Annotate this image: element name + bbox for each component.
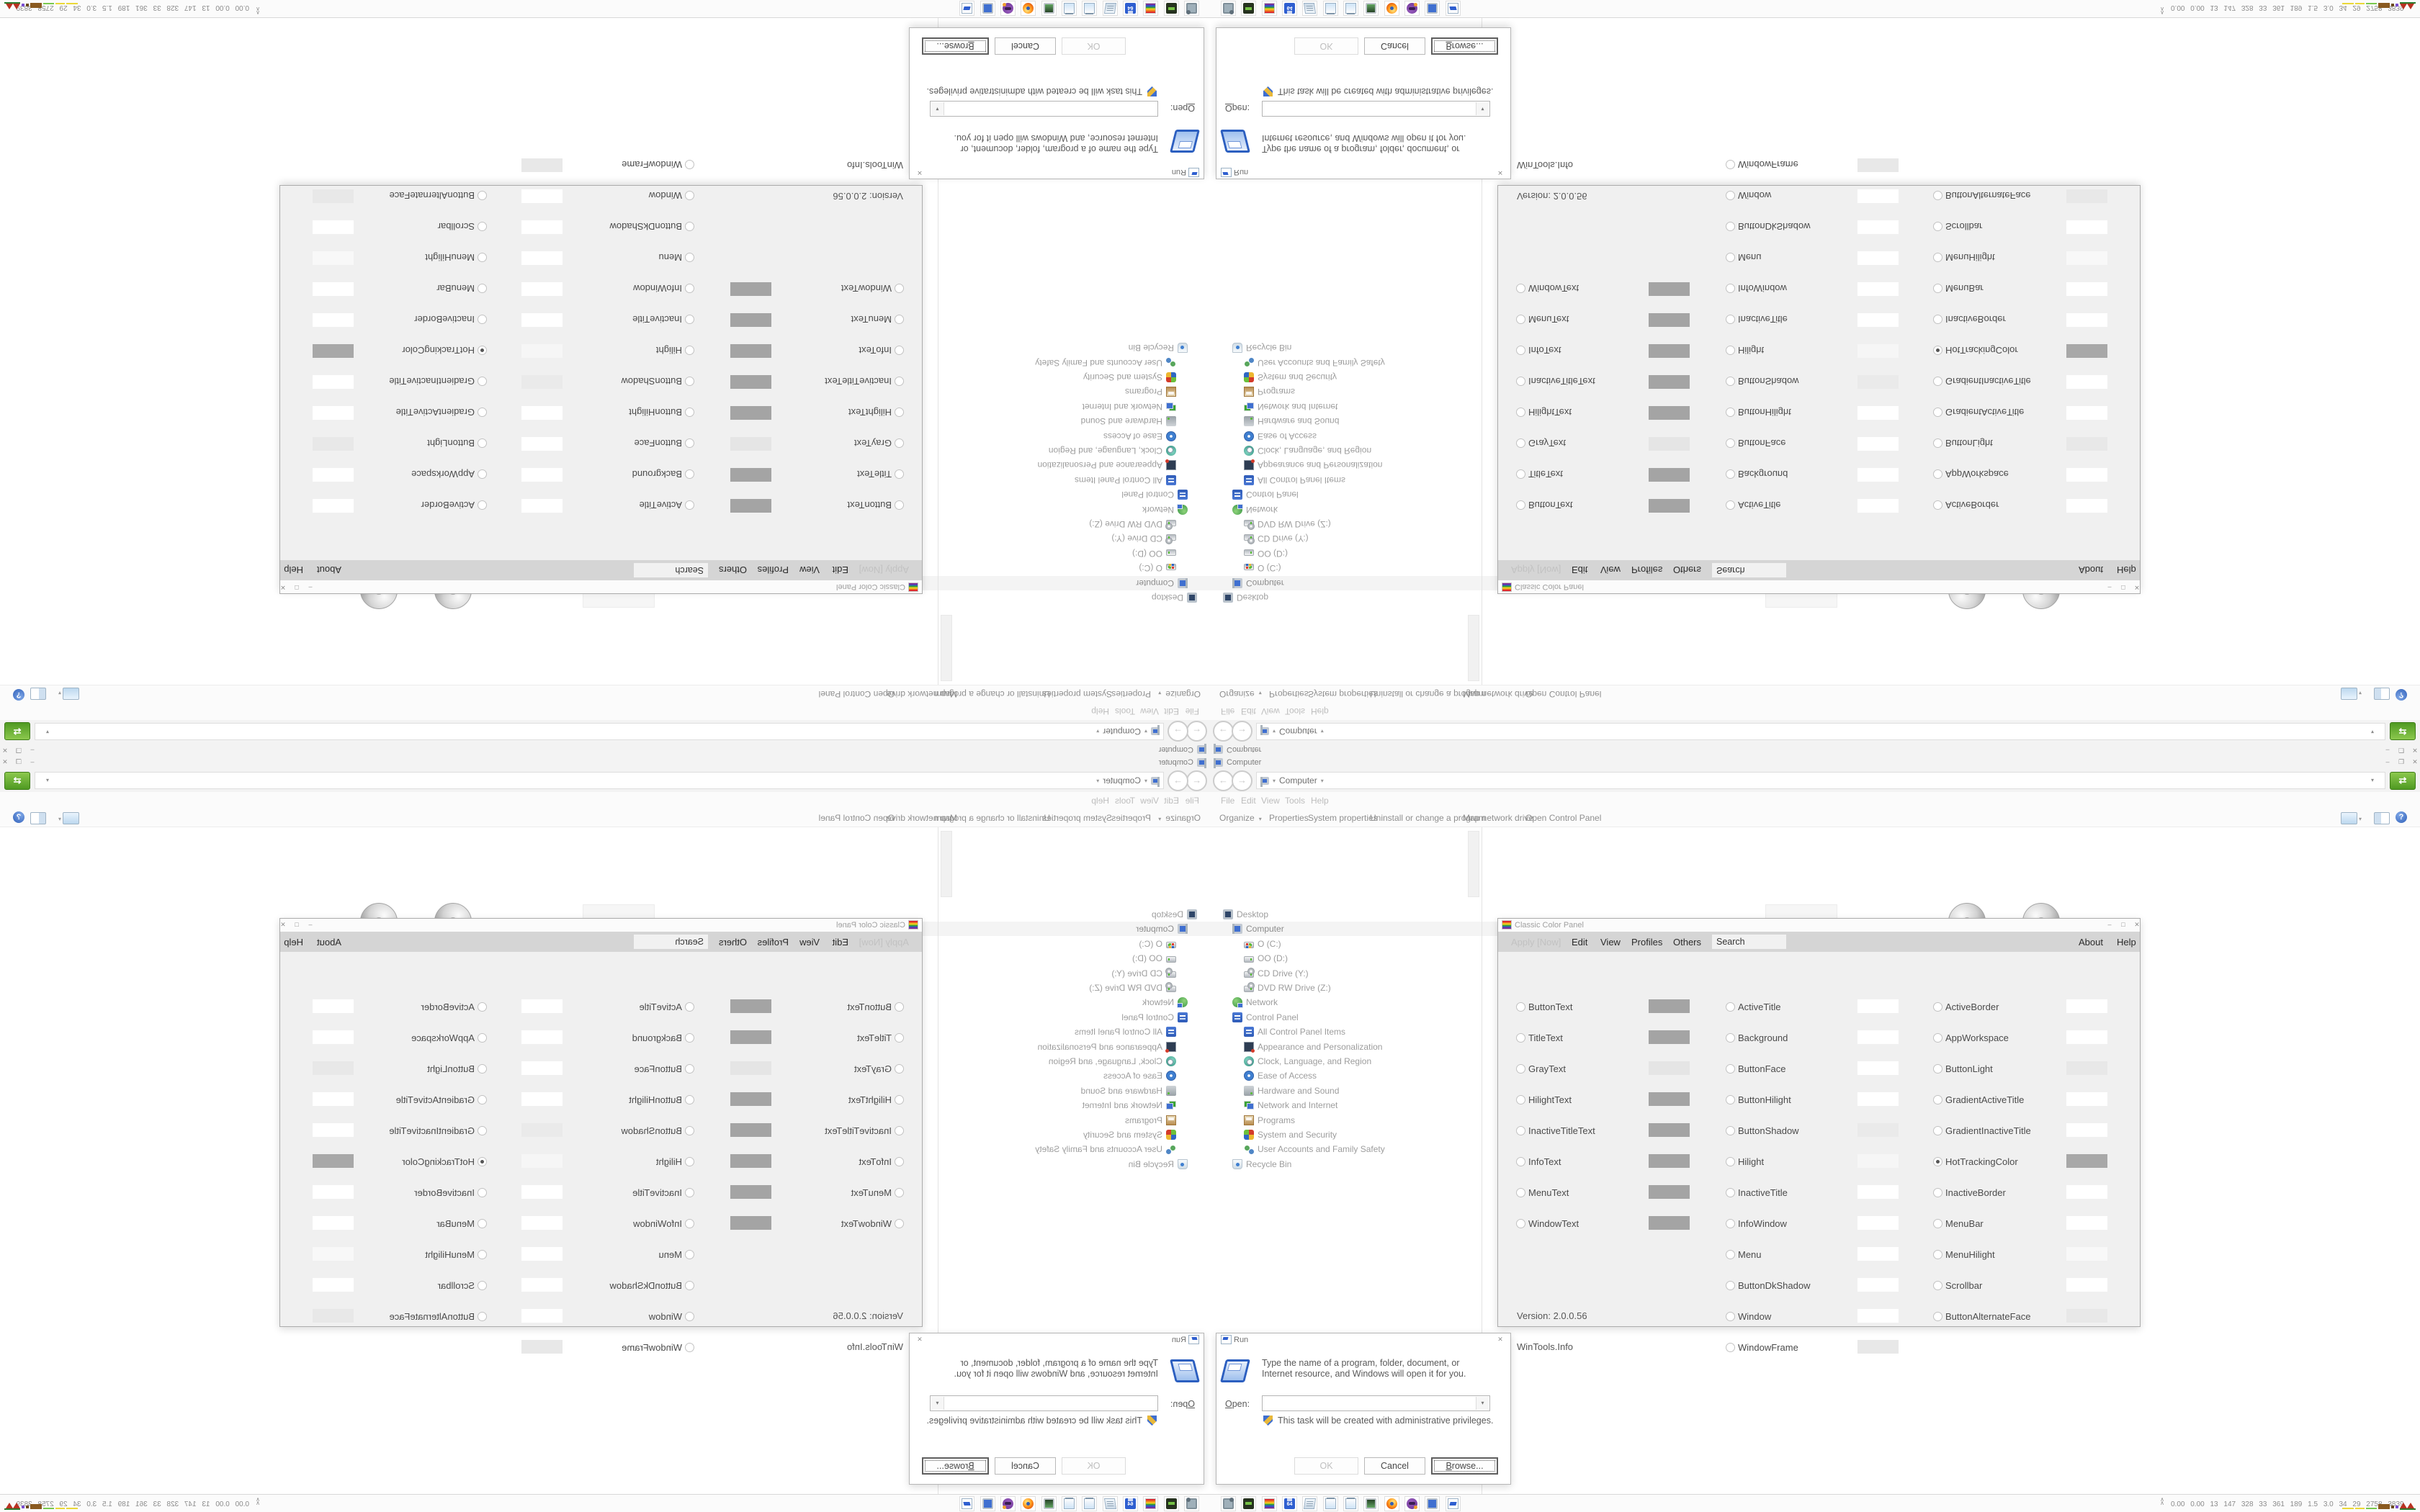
radio-graytext[interactable] [1516, 439, 1525, 449]
color-swatch-background[interactable] [521, 468, 563, 482]
radio-menubar[interactable] [1933, 284, 1942, 294]
back-button[interactable]: ← [1213, 721, 1234, 742]
radio-inactivetitle[interactable] [685, 1188, 694, 1197]
color-swatch-inactivetitletext[interactable] [1649, 375, 1690, 389]
radio-graytext[interactable] [1516, 1064, 1525, 1074]
tree-item-cd-drive-y[interactable]: CD Drive (Y:) [1210, 531, 1515, 546]
taskbar-button-floppy-64[interactable]: 64 [1123, 1, 1138, 16]
toolbar-system-properties[interactable]: System properties [1308, 813, 1378, 823]
restore-button[interactable]: ❐ [2396, 757, 2407, 767]
color-swatch-menuhilight[interactable] [313, 251, 354, 265]
color-panel-menu-view[interactable]: View [799, 564, 820, 575]
restore-button[interactable]: ❐ [2396, 745, 2407, 755]
tree-item-desktop[interactable]: Desktop [1210, 590, 1494, 605]
radio-gradientactivetitle[interactable] [478, 408, 487, 418]
color-swatch-menuhilight[interactable] [2066, 251, 2107, 265]
breadcrumb[interactable]: Computer [1103, 775, 1141, 786]
color-swatch-hottrackingcolor[interactable] [313, 1154, 354, 1168]
toolbar-map-network-drive[interactable]: Map network drive [887, 689, 957, 699]
taskbar-button-text-scroll[interactable] [1302, 1496, 1317, 1511]
back-button[interactable]: ← [1186, 721, 1207, 742]
restore-button[interactable]: ❐ [13, 745, 24, 755]
color-swatch-scrollbar[interactable] [2066, 1278, 2107, 1292]
maximize-button[interactable]: □ [2117, 582, 2129, 592]
color-swatch-windowframe[interactable] [521, 1340, 563, 1354]
minimize-button[interactable]: – [2382, 745, 2393, 755]
radio-buttonalternateface[interactable] [478, 192, 487, 201]
radio-hilighttext[interactable] [895, 408, 904, 418]
color-swatch-buttontext[interactable] [730, 499, 771, 513]
browse-button[interactable]: Browse... [1431, 37, 1498, 55]
radio-gradientactivetitle[interactable] [478, 1095, 487, 1104]
color-swatch-menutext[interactable] [730, 1185, 771, 1199]
radio-infotext[interactable] [895, 1157, 904, 1166]
color-panel-menu-view[interactable]: View [1600, 564, 1621, 575]
color-swatch-activetitle[interactable] [521, 999, 563, 1013]
chevron-down-icon[interactable]: ▾ [1273, 778, 1276, 784]
menu-view[interactable]: View [1140, 706, 1159, 716]
tree-item-oo-d[interactable]: OO (D:) [905, 951, 1210, 966]
taskbar-button-terminal-monitor[interactable] [1363, 1, 1379, 16]
radio-hottrackingcolor[interactable] [478, 346, 487, 356]
radio-buttonshadow[interactable] [685, 1126, 694, 1135]
color-swatch-hilight[interactable] [521, 1154, 563, 1168]
tree-item-ease-of-access[interactable]: Ease of Access [905, 1068, 1210, 1083]
tree-item-computer[interactable]: Computer [917, 922, 1210, 936]
tray-expander-icon[interactable]: ∧∧ [254, 7, 261, 14]
close-button[interactable]: ✕ [2409, 757, 2420, 767]
color-swatch-titletext[interactable] [730, 1030, 771, 1044]
taskbar-button-notepad-2[interactable] [1343, 1496, 1358, 1511]
tree-item-network[interactable]: Network [917, 995, 1210, 1009]
chevron-down-icon[interactable]: ▾ [2359, 690, 2362, 696]
close-button[interactable]: ✕ [2131, 920, 2143, 930]
color-swatch-graytext[interactable] [730, 437, 771, 451]
tree-item-system-and-security[interactable]: System and Security [1210, 1128, 1515, 1142]
tree-item-recycle-bin[interactable]: Recycle Bin [1210, 1157, 1503, 1171]
toolbar-open-control-panel[interactable]: Open Control Panel [1525, 689, 1601, 699]
taskbar-button-media-purple[interactable] [1404, 1, 1420, 16]
radio-titletext[interactable] [1516, 1033, 1525, 1043]
toolbar-organize[interactable]: Organize▾ [1158, 813, 1201, 823]
close-button[interactable]: ✕ [277, 582, 289, 592]
color-swatch-buttonface[interactable] [521, 1061, 563, 1075]
color-swatch-buttonshadow[interactable] [521, 375, 563, 389]
radio-appworkspace[interactable] [478, 470, 487, 480]
menu-edit[interactable]: Edit [1164, 706, 1179, 716]
menu-file[interactable]: File [1221, 796, 1234, 806]
tree-item-computer[interactable]: Computer [1210, 922, 1503, 936]
radio-background[interactable] [1726, 1033, 1735, 1043]
radio-hottrackingcolor[interactable] [1933, 346, 1942, 356]
radio-buttondkshadow[interactable] [685, 1281, 694, 1290]
radio-inactivetitle[interactable] [685, 315, 694, 325]
tree-item-o-c[interactable]: O (C:) [905, 937, 1210, 951]
color-swatch-hilighttext[interactable] [730, 406, 771, 420]
color-panel-menu-help[interactable]: Help [2117, 564, 2136, 575]
restore-button[interactable]: ❐ [13, 757, 24, 767]
preview-pane-icon[interactable] [2374, 812, 2390, 824]
tree-item-ease-of-access[interactable]: Ease of Access [905, 429, 1210, 444]
taskbar-button-notepad[interactable] [1323, 1496, 1338, 1511]
radio-hilight[interactable] [685, 1157, 694, 1166]
color-swatch-inactivetitletext[interactable] [730, 1123, 771, 1137]
tree-item-ease-of-access[interactable]: Ease of Access [1210, 1068, 1515, 1083]
taskbar-button-display-settings[interactable] [1184, 1496, 1199, 1511]
radio-menubar[interactable] [478, 284, 487, 294]
back-button[interactable]: ← [1186, 770, 1207, 791]
tree-item-computer[interactable]: Computer [1210, 576, 1503, 590]
tray-expander-icon[interactable]: ∧∧ [2159, 1498, 2166, 1505]
tree-item-clock-language-and-region[interactable]: Clock, Language, and Region [905, 1054, 1210, 1068]
tree-item-system-and-security[interactable]: System and Security [905, 370, 1210, 384]
chevron-down-icon[interactable]: ▾ [1096, 778, 1099, 784]
taskbar-button-firefox[interactable] [1021, 1, 1036, 16]
radio-hilighttext[interactable] [1516, 408, 1525, 418]
radio-hottrackingcolor[interactable] [1933, 1157, 1942, 1166]
radio-activeborder[interactable] [478, 1002, 487, 1012]
tree-item-hardware-and-sound[interactable]: Hardware and Sound [905, 414, 1210, 428]
radio-buttondkshadow[interactable] [685, 222, 694, 232]
chevron-down-icon[interactable]: ▾ [1321, 778, 1324, 784]
taskbar-button-rainbow-color-panel[interactable] [1143, 1496, 1158, 1511]
tree-item-cd-drive-y[interactable]: CD Drive (Y:) [1210, 966, 1515, 981]
color-swatch-activeborder[interactable] [313, 499, 354, 513]
radio-buttonalternateface[interactable] [1933, 192, 1942, 201]
radio-buttontext[interactable] [1516, 501, 1525, 510]
color-panel-title-bar[interactable]: Classic Color Panel – □ ✕ [1498, 580, 2140, 593]
tree-item-appearance-and-personalization[interactable]: Appearance and Personalization [905, 458, 1210, 472]
color-swatch-buttondkshadow[interactable] [521, 1278, 563, 1292]
color-swatch-menu[interactable] [521, 1247, 563, 1261]
chevron-down-icon[interactable]: ▾ [58, 690, 61, 696]
color-swatch-windowframe[interactable] [1857, 158, 1899, 172]
tree-item-oo-d[interactable]: OO (D:) [905, 546, 1210, 561]
change-view-icon[interactable] [63, 812, 79, 824]
forward-button[interactable]: → [1232, 721, 1252, 742]
radio-hilight[interactable] [685, 346, 694, 356]
radio-hilighttext[interactable] [1516, 1095, 1525, 1104]
color-panel-menu-about[interactable]: About [317, 564, 341, 575]
color-swatch-buttonface[interactable] [521, 437, 563, 451]
color-swatch-inactiveborder[interactable] [313, 1185, 354, 1199]
minimize-button[interactable]: – [27, 757, 38, 767]
color-swatch-buttonface[interactable] [1857, 1061, 1899, 1075]
radio-buttonhilight[interactable] [685, 408, 694, 418]
color-swatch-windowtext[interactable] [1649, 1216, 1690, 1230]
toolbar-system-properties[interactable]: System properties [1042, 813, 1112, 823]
menu-file[interactable]: File [1186, 796, 1199, 806]
taskbar-button-display-settings[interactable] [1221, 1, 1236, 16]
color-swatch-windowtext[interactable] [730, 282, 771, 296]
minimize-button[interactable]: – [27, 745, 38, 755]
maximize-button[interactable]: □ [291, 582, 302, 592]
color-swatch-buttonface[interactable] [1857, 437, 1899, 451]
close-button[interactable]: ✕ [2131, 582, 2143, 592]
tray-expander-icon[interactable]: ∧∧ [254, 1498, 261, 1505]
menu-edit[interactable]: Edit [1241, 706, 1256, 716]
color-panel-menu-help[interactable]: Help [2117, 937, 2136, 948]
color-panel-menu-help[interactable]: Help [284, 564, 303, 575]
radio-gradientinactivetitle[interactable] [1933, 1126, 1942, 1135]
radio-menu[interactable] [1726, 253, 1735, 263]
search-input[interactable]: Search [1712, 563, 1786, 577]
radio-menu[interactable] [1726, 1250, 1735, 1259]
tree-item-desktop[interactable]: Desktop [1210, 907, 1494, 922]
tree-item-recycle-bin[interactable]: Recycle Bin [917, 341, 1210, 355]
refresh-go-button[interactable]: ⇄ [4, 722, 30, 740]
help-icon[interactable]: ? [2396, 811, 2407, 823]
taskbar-button-computer-monitor[interactable] [1425, 1, 1440, 16]
breadcrumb[interactable]: Computer [1279, 775, 1317, 786]
tree-item-cd-drive-y[interactable]: CD Drive (Y:) [905, 966, 1210, 981]
chevron-down-icon[interactable]: ▾ [1144, 778, 1147, 784]
radio-buttonlight[interactable] [1933, 1064, 1942, 1074]
radio-appworkspace[interactable] [1933, 470, 1942, 480]
tree-item-oo-d[interactable]: OO (D:) [1210, 951, 1515, 966]
color-swatch-activeborder[interactable] [2066, 499, 2107, 513]
color-swatch-windowtext[interactable] [1649, 282, 1690, 296]
taskbar-button-terminal-monitor[interactable] [1041, 1496, 1057, 1511]
color-swatch-menu[interactable] [1857, 251, 1899, 265]
radio-activetitle[interactable] [1726, 1002, 1735, 1012]
taskbar-button-rainbow-color-panel[interactable] [1143, 1, 1158, 16]
color-swatch-menubar[interactable] [2066, 1216, 2107, 1230]
change-view-icon[interactable] [2341, 812, 2357, 824]
taskbar-button-media-purple[interactable] [1404, 1496, 1420, 1511]
cancel-button[interactable]: Cancel [1364, 37, 1425, 55]
menu-edit[interactable]: Edit [1164, 796, 1179, 806]
color-panel-menu-profiles[interactable]: Profiles [1631, 564, 1662, 575]
tree-item-computer[interactable]: Computer [917, 576, 1210, 590]
tree-item-user-accounts-and-family-safety[interactable]: User Accounts and Family Safety [905, 356, 1210, 370]
browse-button[interactable]: Browse... [922, 37, 989, 55]
radio-infowindow[interactable] [685, 284, 694, 294]
color-swatch-hilight[interactable] [1857, 1154, 1899, 1168]
radio-gradientactivetitle[interactable] [1933, 408, 1942, 418]
color-swatch-activeborder[interactable] [2066, 999, 2107, 1013]
radio-inactivetitle[interactable] [1726, 315, 1735, 325]
radio-activetitle[interactable] [685, 501, 694, 510]
radio-buttonalternateface[interactable] [478, 1312, 487, 1321]
taskbar-button-notepad-2[interactable] [1062, 1496, 1077, 1511]
tree-item-ease-of-access[interactable]: Ease of Access [1210, 429, 1515, 444]
taskbar-button-rainbow-color-panel[interactable] [1262, 1, 1277, 16]
radio-windowtext[interactable] [1516, 1219, 1525, 1228]
color-swatch-hottrackingcolor[interactable] [2066, 1154, 2107, 1168]
color-panel-menu-others[interactable]: Others [719, 564, 747, 575]
color-swatch-background[interactable] [521, 1030, 563, 1044]
taskbar-button-notepad-2[interactable] [1062, 1, 1077, 16]
taskbar-button-drive-tool[interactable] [1164, 1, 1179, 16]
radio-buttonface[interactable] [685, 439, 694, 449]
color-swatch-buttondkshadow[interactable] [1857, 220, 1899, 234]
radio-buttonshadow[interactable] [685, 377, 694, 387]
tree-item-clock-language-and-region[interactable]: Clock, Language, and Region [905, 444, 1210, 458]
search-input[interactable]: Search [634, 935, 708, 949]
radio-buttonlight[interactable] [478, 439, 487, 449]
color-swatch-buttonhilight[interactable] [521, 406, 563, 420]
menu-view[interactable]: View [1140, 796, 1159, 806]
radio-windowtext[interactable] [895, 284, 904, 294]
color-swatch-graytext[interactable] [730, 1061, 771, 1075]
tree-item-network[interactable]: Network [1210, 995, 1503, 1009]
taskbar-button-text-scroll[interactable] [1302, 1, 1317, 16]
taskbar-button-run[interactable] [1446, 1, 1461, 16]
color-swatch-windowtext[interactable] [730, 1216, 771, 1230]
color-swatch-inactivetitletext[interactable] [1649, 1123, 1690, 1137]
color-swatch-infowindow[interactable] [1857, 282, 1899, 296]
nav-scrollbar-thumb[interactable] [941, 831, 952, 897]
cancel-button[interactable]: Cancel [995, 37, 1056, 55]
tree-item-dvd-rw-drive-z[interactable]: DVD RW Drive (Z:) [905, 517, 1210, 531]
color-swatch-buttondkshadow[interactable] [521, 220, 563, 234]
color-swatch-buttondkshadow[interactable] [1857, 1278, 1899, 1292]
radio-menuhilight[interactable] [1933, 1250, 1942, 1259]
radio-infowindow[interactable] [1726, 284, 1735, 294]
radio-appworkspace[interactable] [1933, 1033, 1942, 1043]
radio-hilight[interactable] [1726, 346, 1735, 356]
forward-button[interactable]: → [1232, 770, 1252, 791]
toolbar-properties[interactable]: Properties [1269, 689, 1309, 699]
menu-file[interactable]: File [1221, 706, 1234, 716]
color-swatch-appworkspace[interactable] [313, 1030, 354, 1044]
tree-item-all-control-panel-items[interactable]: All Control Panel Items [905, 1025, 1210, 1039]
tree-item-appearance-and-personalization[interactable]: Appearance and Personalization [1210, 1040, 1515, 1054]
color-swatch-inactivetitle[interactable] [1857, 1185, 1899, 1199]
color-swatch-background[interactable] [1857, 1030, 1899, 1044]
taskbar-button-drive-tool[interactable] [1164, 1496, 1179, 1511]
radio-window[interactable] [1726, 1312, 1735, 1321]
radio-inactiveborder[interactable] [478, 1188, 487, 1197]
color-swatch-buttonalternateface[interactable] [313, 1309, 354, 1323]
radio-inactiveborder[interactable] [478, 315, 487, 325]
radio-menutext[interactable] [895, 315, 904, 325]
refresh-go-button[interactable]: ⇄ [4, 772, 30, 790]
radio-buttondkshadow[interactable] [1726, 222, 1735, 232]
address-history-dropdown-icon[interactable]: ▾ [46, 777, 49, 783]
cancel-button[interactable]: Cancel [1364, 1457, 1425, 1475]
radio-windowframe[interactable] [1726, 161, 1735, 170]
radio-gradientinactivetitle[interactable] [478, 1126, 487, 1135]
color-swatch-menubar[interactable] [313, 282, 354, 296]
radio-activeborder[interactable] [478, 501, 487, 510]
toolbar-open-control-panel[interactable]: Open Control Panel [819, 813, 895, 823]
minimize-button[interactable]: – [2104, 920, 2115, 930]
color-swatch-activetitle[interactable] [521, 499, 563, 513]
radio-graytext[interactable] [895, 1064, 904, 1074]
color-swatch-hottrackingcolor[interactable] [313, 344, 354, 358]
color-panel-menu-help[interactable]: Help [284, 937, 303, 948]
color-panel-menu-profiles[interactable]: Profiles [758, 564, 789, 575]
browse-button[interactable]: Browse... [1431, 1457, 1498, 1475]
tree-item-control-panel[interactable]: Control Panel [917, 487, 1210, 502]
color-swatch-infotext[interactable] [1649, 344, 1690, 358]
color-panel-menu-view[interactable]: View [799, 937, 820, 948]
chevron-down-icon[interactable]: ▾ [1321, 729, 1324, 735]
taskbar-button-display-settings[interactable] [1184, 1, 1199, 16]
taskbar-button-computer-monitor[interactable] [1425, 1496, 1440, 1511]
taskbar-button-floppy-64[interactable]: 64 [1123, 1496, 1138, 1511]
close-button[interactable]: ✕ [0, 757, 11, 767]
tree-item-user-accounts-and-family-safety[interactable]: User Accounts and Family Safety [1210, 356, 1515, 370]
color-swatch-menuhilight[interactable] [2066, 1247, 2107, 1261]
menu-tools[interactable]: Tools [1115, 796, 1135, 806]
taskbar-button-media-purple[interactable] [1000, 1496, 1016, 1511]
radio-scrollbar[interactable] [1933, 1281, 1942, 1290]
color-swatch-menutext[interactable] [1649, 1185, 1690, 1199]
toolbar-properties[interactable]: Properties [1111, 813, 1151, 823]
color-panel-menu-others[interactable]: Others [1673, 564, 1701, 575]
radio-buttonhilight[interactable] [685, 1095, 694, 1104]
maximize-button[interactable]: □ [291, 920, 302, 930]
color-swatch-window[interactable] [1857, 189, 1899, 203]
color-swatch-gradientinactivetitle[interactable] [2066, 375, 2107, 389]
radio-window[interactable] [685, 192, 694, 201]
color-panel-menu-others[interactable]: Others [1673, 937, 1701, 948]
color-panel-menu-edit[interactable]: Edit [833, 564, 848, 575]
address-field[interactable]: ▾ Computer ▾ [1256, 723, 2385, 740]
back-button[interactable]: ← [1213, 770, 1234, 791]
radio-buttontext[interactable] [895, 1002, 904, 1012]
radio-activetitle[interactable] [1726, 501, 1735, 510]
address-history-dropdown-icon[interactable]: ▾ [2371, 729, 2374, 735]
tree-item-network-and-internet[interactable]: Network and Internet [905, 400, 1210, 414]
address-history-dropdown-icon[interactable]: ▾ [46, 729, 49, 735]
color-panel-menu-others[interactable]: Others [719, 937, 747, 948]
radio-activeborder[interactable] [1933, 1002, 1942, 1012]
color-swatch-buttontext[interactable] [730, 999, 771, 1013]
color-swatch-buttonalternateface[interactable] [2066, 1309, 2107, 1323]
taskbar-button-media-purple[interactable] [1000, 1, 1016, 16]
tree-item-control-panel[interactable]: Control Panel [1210, 487, 1503, 502]
browse-button[interactable]: Browse... [922, 1457, 989, 1475]
radio-buttonface[interactable] [1726, 439, 1735, 449]
menu-file[interactable]: File [1186, 706, 1199, 716]
radio-buttonface[interactable] [685, 1064, 694, 1074]
search-input[interactable]: Search [634, 563, 708, 577]
tree-item-dvd-rw-drive-z[interactable]: DVD RW Drive (Z:) [1210, 981, 1515, 995]
address-field[interactable]: ▾ Computer ▾ [35, 772, 1164, 789]
taskbar-button-floppy-64[interactable]: 64 [1282, 1496, 1297, 1511]
radio-windowtext[interactable] [895, 1219, 904, 1228]
minimize-button[interactable]: – [2104, 582, 2115, 592]
color-swatch-scrollbar[interactable] [313, 1278, 354, 1292]
color-swatch-windowframe[interactable] [1857, 1340, 1899, 1354]
toolbar-properties[interactable]: Properties [1269, 813, 1309, 823]
color-swatch-menuhilight[interactable] [313, 1247, 354, 1261]
toolbar-map-network-drive[interactable]: Map network drive [1463, 689, 1533, 699]
tree-item-o-c[interactable]: O (C:) [905, 561, 1210, 575]
menu-help[interactable]: Help [1311, 706, 1329, 716]
color-swatch-activetitle[interactable] [1857, 499, 1899, 513]
taskbar-button-run[interactable] [959, 1, 974, 16]
color-swatch-appworkspace[interactable] [2066, 1030, 2107, 1044]
color-swatch-menubar[interactable] [313, 1216, 354, 1230]
maximize-button[interactable]: □ [2117, 920, 2129, 930]
help-icon[interactable]: ? [13, 811, 24, 823]
explorer-title-bar[interactable]: Computer – ❐ ✕ [1210, 743, 2420, 756]
color-swatch-buttontext[interactable] [1649, 999, 1690, 1013]
color-swatch-infowindow[interactable] [521, 282, 563, 296]
chevron-down-icon[interactable]: ▾ [1144, 729, 1147, 735]
tree-item-oo-d[interactable]: OO (D:) [1210, 546, 1515, 561]
preview-pane-icon[interactable] [30, 688, 46, 700]
color-swatch-buttonlight[interactable] [313, 1061, 354, 1075]
color-swatch-menu[interactable] [1857, 1247, 1899, 1261]
radio-windowtext[interactable] [1516, 284, 1525, 294]
radio-menuhilight[interactable] [478, 253, 487, 263]
